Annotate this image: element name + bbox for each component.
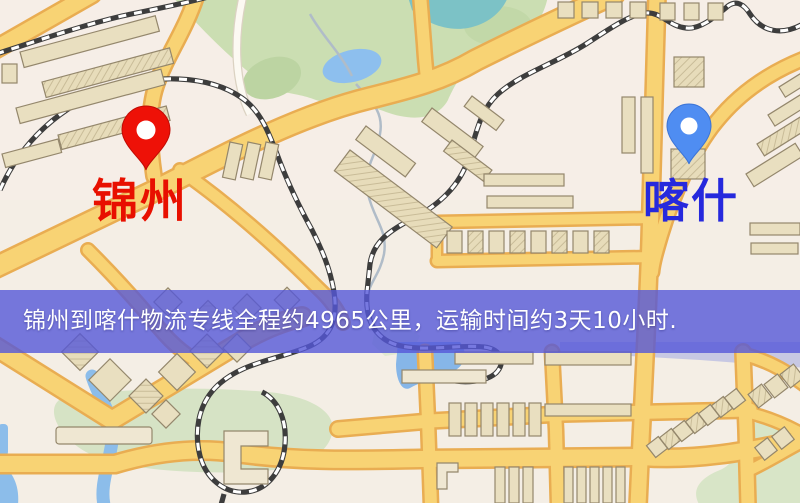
route-banner: 锦州到喀什物流专线全程约4965公里，运输时间约3天10小时. bbox=[0, 290, 800, 353]
map-canvas bbox=[0, 0, 800, 503]
origin-label: 锦州 bbox=[92, 178, 188, 224]
origin-pin-icon bbox=[116, 104, 176, 176]
destination-label: 喀什 bbox=[643, 178, 739, 224]
route-banner-text: 锦州到喀什物流专线全程约4965公里，运输时间约3天10小时. bbox=[23, 290, 677, 353]
map-view: 锦州到喀什物流专线全程约4965公里，运输时间约3天10小时. 锦州 喀什 bbox=[0, 0, 800, 503]
destination-pin-icon bbox=[661, 102, 717, 170]
